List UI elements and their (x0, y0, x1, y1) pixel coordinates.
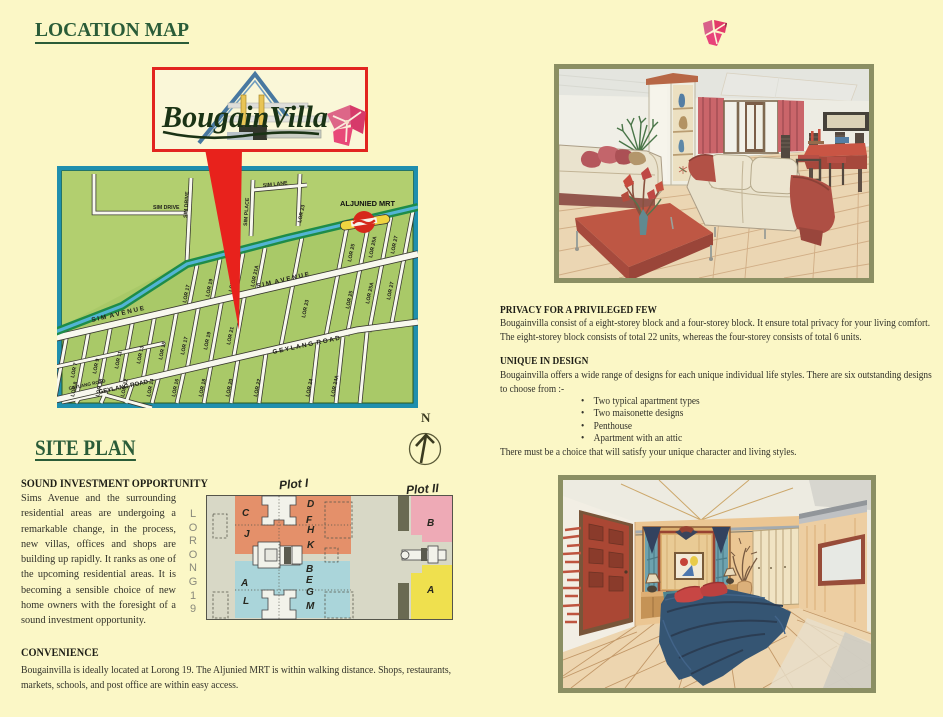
svg-text:D: D (307, 499, 314, 510)
svg-text:G: G (306, 587, 314, 598)
svg-text:H: H (307, 525, 315, 536)
svg-text:E: E (306, 575, 313, 586)
svg-text:L: L (243, 596, 249, 607)
svg-text:K: K (307, 540, 315, 551)
svg-text:C: C (242, 508, 250, 519)
svg-text:SIM DRIVE: SIM DRIVE (153, 205, 180, 211)
svg-text:BougainVilla: BougainVilla (161, 99, 328, 134)
svg-text:J: J (244, 529, 250, 540)
svg-text:ALJUNIED MRT: ALJUNIED MRT (340, 199, 396, 208)
svg-text:B: B (306, 564, 313, 575)
svg-text:A: A (240, 578, 248, 589)
svg-text:N: N (421, 410, 431, 425)
svg-text:B: B (427, 518, 434, 529)
svg-text:M: M (306, 601, 315, 612)
svg-text:A: A (426, 585, 434, 596)
